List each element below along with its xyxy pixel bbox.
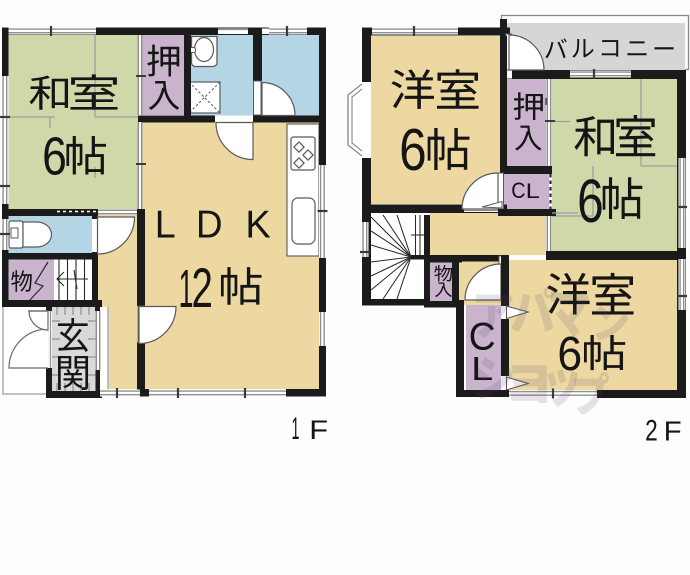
svg-text:6: 6 [399,116,427,183]
svg-text:1: 1 [292,412,300,447]
svg-text:F: F [309,416,328,446]
svg-text:2: 2 [192,258,213,320]
svg-text:6: 6 [577,166,604,235]
svg-text:L: L [155,203,176,247]
svg-text:2: 2 [645,414,658,448]
svg-text:C: C [511,179,525,203]
svg-text:F: F [664,416,682,447]
svg-text:L: L [526,179,540,203]
svg-text:D: D [196,203,223,246]
svg-text:K: K [245,203,271,247]
svg-text:6: 6 [42,127,67,187]
